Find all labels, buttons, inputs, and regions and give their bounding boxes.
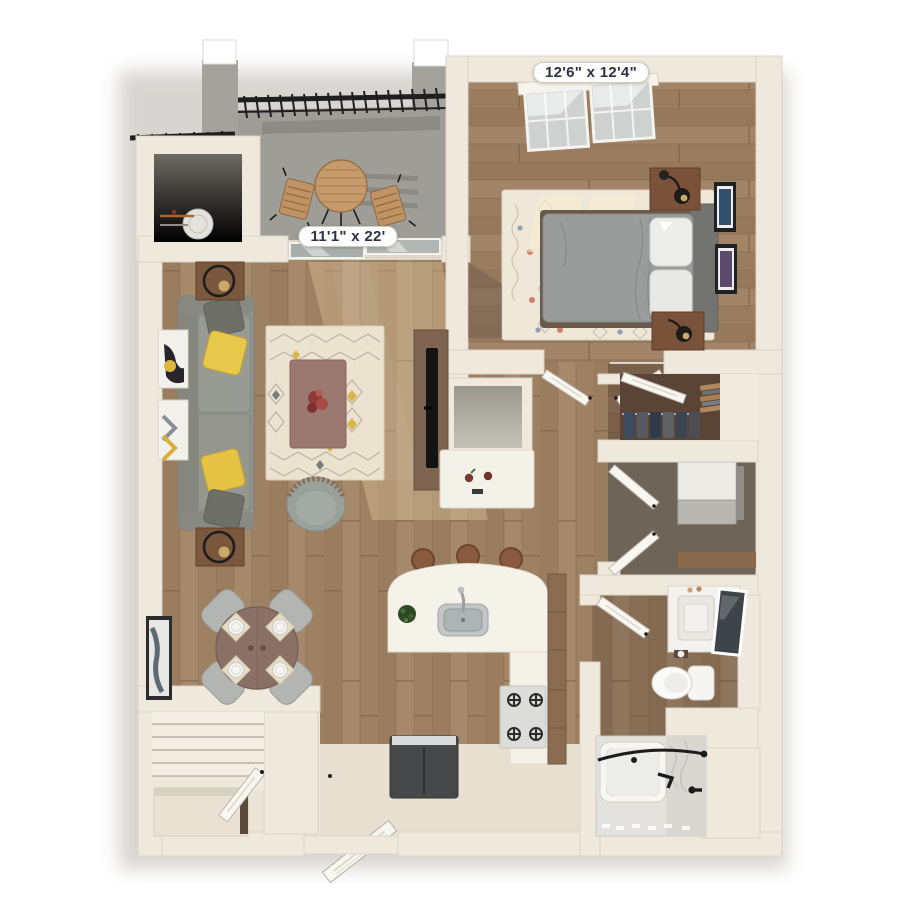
coffee-table xyxy=(290,360,346,448)
living-room-dimension-label: 11'1" x 22' xyxy=(298,226,397,247)
island-plant xyxy=(398,605,416,623)
nightstand-bottom xyxy=(652,312,704,350)
pillow-top xyxy=(650,218,692,266)
walk-in-closet xyxy=(620,372,758,440)
pillow-bottom xyxy=(650,270,692,318)
range-stove xyxy=(500,686,546,748)
dining-wall-art xyxy=(146,616,172,700)
bedroom-dimension-label: 12'6" x 12'4" xyxy=(533,62,649,83)
side-table-bottom xyxy=(196,528,244,566)
accent-chair xyxy=(287,477,345,531)
leaning-mirror xyxy=(713,589,747,655)
desk-nook xyxy=(440,386,534,508)
side-table-top xyxy=(196,262,244,300)
appliance xyxy=(678,462,744,524)
sofa xyxy=(178,296,254,530)
utility-closet xyxy=(154,154,242,242)
refrigerator xyxy=(390,736,458,798)
floor-plan-render: 12'6" x 12'4" 11'1" x 22' xyxy=(0,0,900,900)
lamp xyxy=(219,281,230,292)
kitchen-cabinets xyxy=(548,574,566,764)
bathtub xyxy=(596,736,707,836)
lamp xyxy=(219,547,230,558)
floor-plan-canvas xyxy=(0,0,900,900)
laundry-shelf xyxy=(678,552,756,568)
door-threshold xyxy=(304,836,398,854)
nightstand-top xyxy=(650,168,700,210)
